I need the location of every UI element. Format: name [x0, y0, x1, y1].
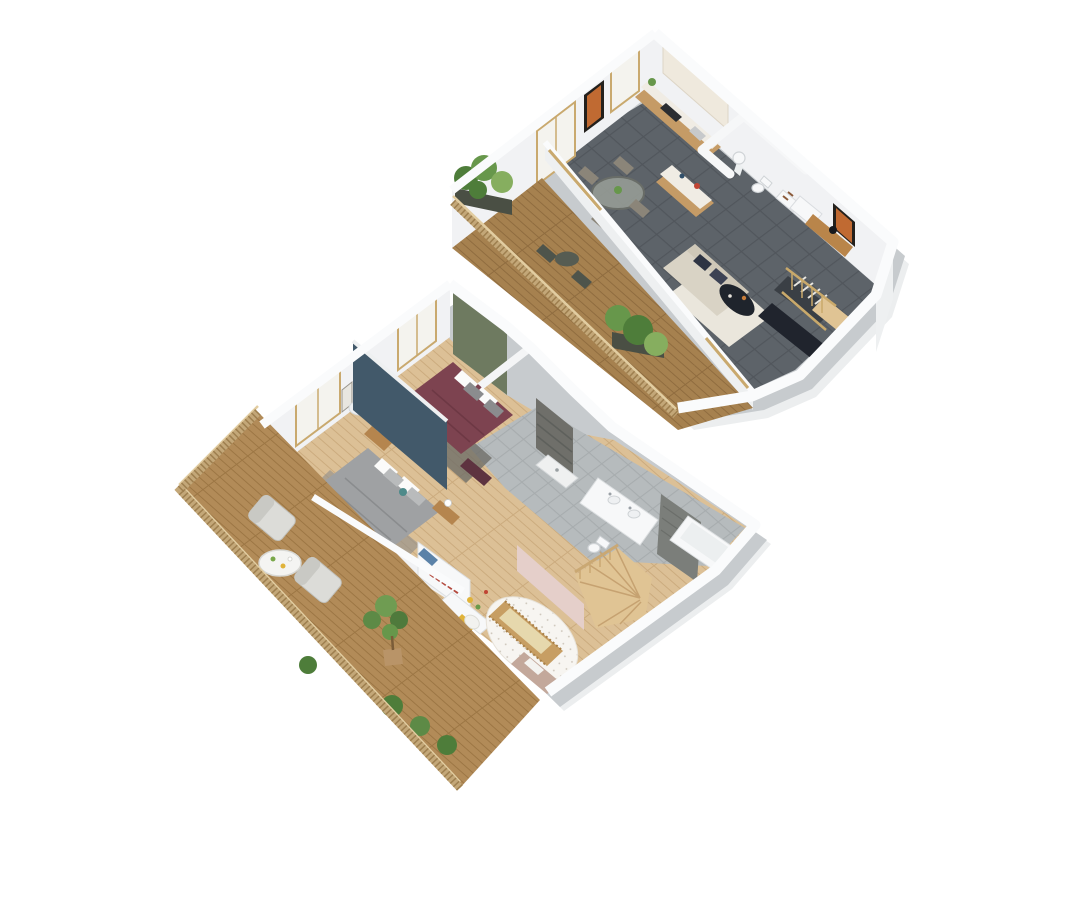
table-decor	[742, 296, 746, 300]
bush	[299, 656, 317, 674]
sink	[628, 510, 640, 518]
toilet	[588, 544, 600, 553]
toy	[467, 597, 473, 603]
record-player	[829, 226, 837, 234]
red-lamp	[694, 183, 700, 189]
floor-plan-canvas	[0, 0, 1070, 910]
table-lamp	[445, 500, 452, 507]
bush	[437, 735, 457, 755]
shower-drain	[555, 468, 559, 472]
plant-fern	[644, 332, 668, 356]
tree-pot	[383, 648, 403, 666]
tree-trunk	[392, 636, 393, 650]
bistro-table	[555, 252, 579, 267]
drink	[281, 564, 286, 569]
round-terrace-table	[259, 550, 301, 576]
toy	[476, 605, 481, 610]
floor-plan-render	[0, 0, 1070, 910]
plant	[491, 171, 513, 193]
plant	[469, 181, 487, 199]
toilet	[752, 184, 764, 193]
tree-foliage	[382, 624, 398, 640]
counter-plant	[648, 78, 656, 86]
table-flowers	[614, 186, 622, 194]
sink	[608, 496, 620, 504]
accent-cushion	[399, 488, 407, 496]
toy	[484, 590, 488, 594]
table-decor	[728, 294, 732, 298]
faucet	[609, 493, 612, 496]
drink	[271, 557, 276, 562]
plate	[288, 557, 292, 561]
pedestal-washbasin	[733, 152, 745, 164]
vase	[680, 174, 685, 179]
faucet	[629, 507, 632, 510]
